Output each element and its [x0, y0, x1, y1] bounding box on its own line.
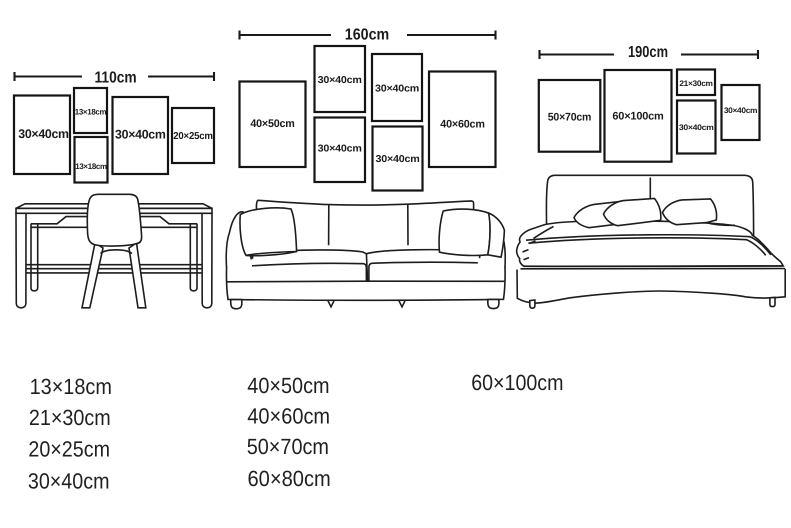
svg-text:20×25cm: 20×25cm: [173, 131, 213, 142]
svg-text:30×40cm: 30×40cm: [318, 144, 362, 155]
svg-text:50×70cm: 50×70cm: [548, 112, 592, 124]
svg-text:30×40cm: 30×40cm: [115, 128, 166, 142]
svg-text:13×18cm: 13×18cm: [30, 374, 112, 399]
svg-text:60×100cm: 60×100cm: [612, 111, 664, 123]
svg-text:190cm: 190cm: [628, 44, 668, 61]
svg-text:30×40cm: 30×40cm: [28, 468, 110, 493]
svg-text:40×60cm: 40×60cm: [440, 118, 485, 130]
svg-text:30×40cm: 30×40cm: [18, 127, 69, 141]
svg-text:21×30cm: 21×30cm: [679, 79, 712, 88]
svg-text:40×60cm: 40×60cm: [247, 404, 330, 429]
svg-text:30×40cm: 30×40cm: [376, 154, 420, 165]
svg-text:110cm: 110cm: [95, 70, 137, 87]
svg-text:60×80cm: 60×80cm: [248, 466, 331, 491]
svg-text:40×50cm: 40×50cm: [250, 118, 295, 130]
svg-text:20×25cm: 20×25cm: [28, 437, 110, 462]
svg-text:60×100cm: 60×100cm: [471, 370, 563, 395]
svg-text:30×40cm: 30×40cm: [679, 123, 714, 132]
svg-text:21×30cm: 21×30cm: [29, 405, 111, 430]
svg-text:30×40cm: 30×40cm: [318, 75, 362, 86]
svg-text:40×50cm: 40×50cm: [247, 373, 329, 398]
svg-text:13×18cm: 13×18cm: [75, 108, 107, 117]
svg-text:30×40cm: 30×40cm: [724, 106, 757, 115]
svg-text:13×18cm: 13×18cm: [75, 162, 107, 171]
svg-text:160cm: 160cm: [345, 27, 389, 44]
svg-text:50×70cm: 50×70cm: [247, 434, 329, 459]
svg-text:30×40cm: 30×40cm: [375, 84, 419, 95]
